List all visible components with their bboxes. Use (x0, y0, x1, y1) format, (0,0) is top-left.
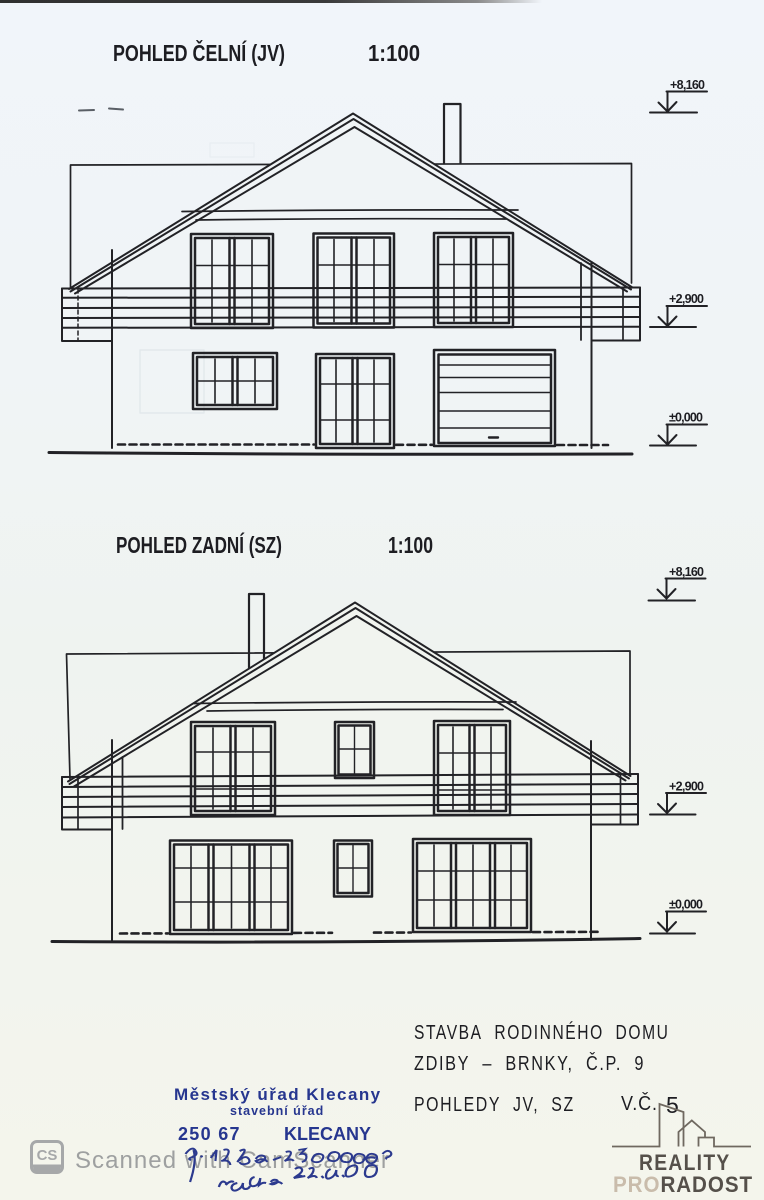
svg-text:+8,160: +8,160 (669, 565, 704, 579)
svg-text:±0,000: ±0,000 (669, 411, 703, 425)
svg-text:+8,160: +8,160 (670, 78, 705, 92)
svg-text:+2,900: +2,900 (669, 780, 704, 794)
svg-text:±0,000: ±0,000 (669, 898, 703, 912)
svg-text:CS: CS (37, 1147, 58, 1164)
svg-text:+2,900: +2,900 (669, 292, 704, 306)
